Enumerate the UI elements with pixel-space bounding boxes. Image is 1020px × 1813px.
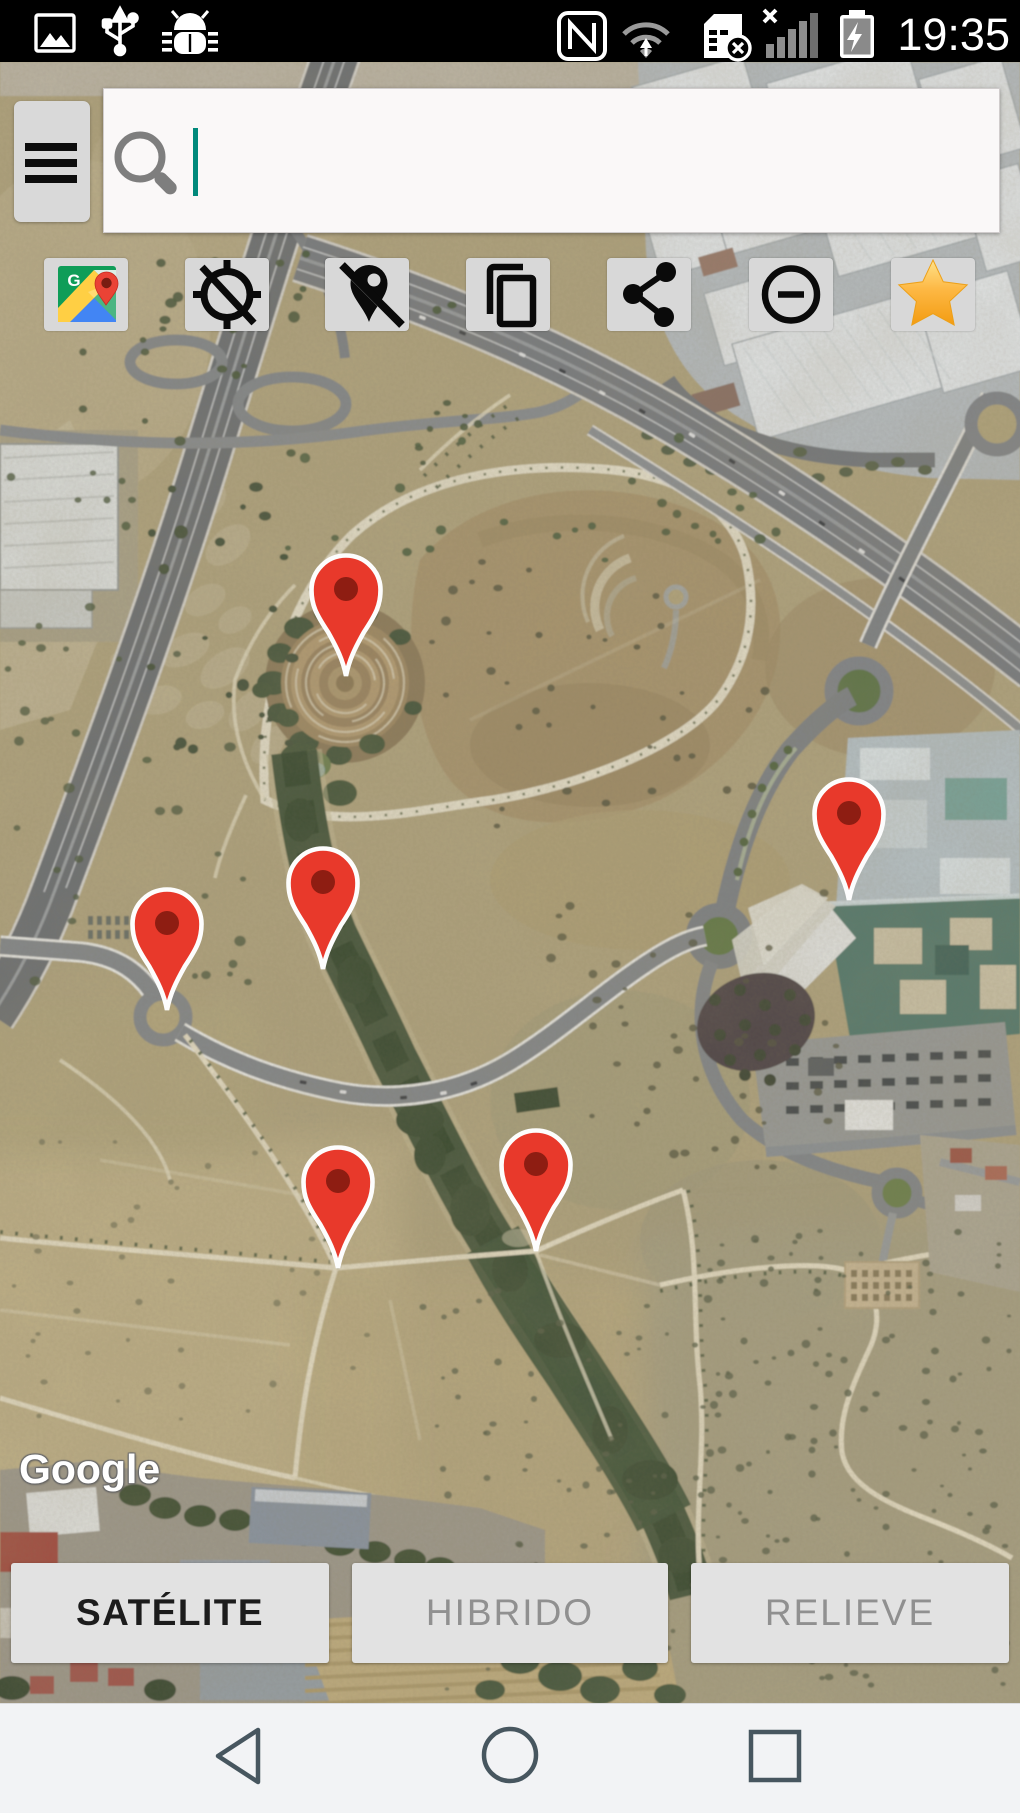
svg-text:G: G [67, 271, 80, 290]
svg-text:19:35: 19:35 [897, 9, 1010, 60]
